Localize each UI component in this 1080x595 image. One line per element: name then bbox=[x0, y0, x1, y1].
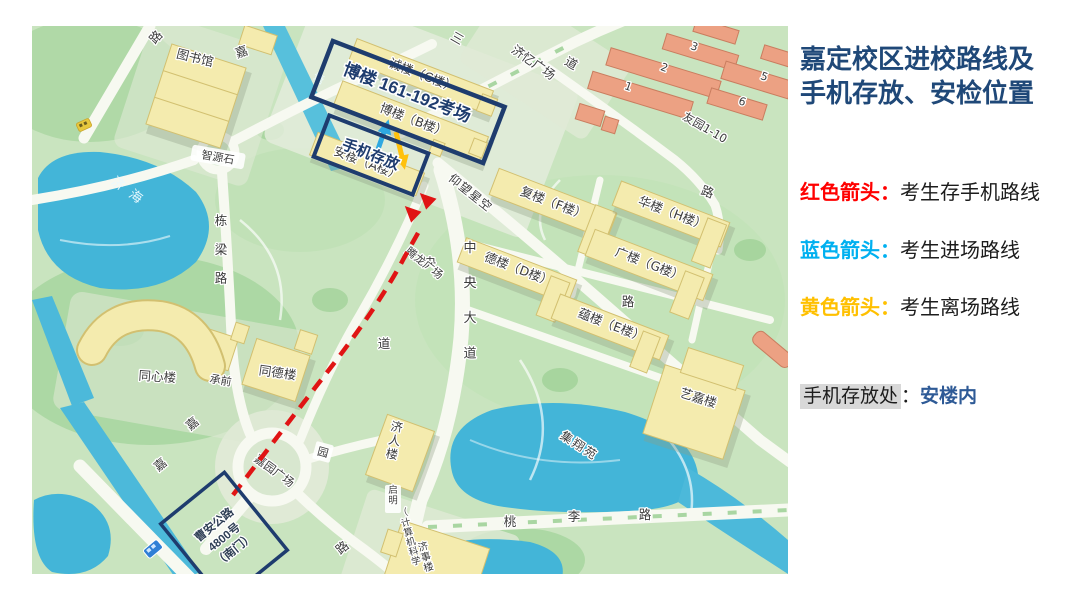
legend-blue-label: 蓝色箭头： bbox=[800, 240, 900, 262]
roadchar-dao-left: 道 bbox=[378, 336, 391, 351]
legend-blue-arrow: 蓝色箭头：考生进场路线 bbox=[800, 234, 1020, 263]
label-dongliang-road: 栋梁路 bbox=[215, 213, 228, 286]
phone-storage-note-label: 手机存放处 bbox=[800, 384, 901, 409]
campus-map: 图书馆 智源石 济海 塘 栋梁路 中央大道 央 道 道 三 路 嘉 路 路 路 … bbox=[32, 26, 788, 574]
legend-red-label: 红色箭头： bbox=[800, 182, 900, 204]
legend-panel: 嘉定校区进校路线及 手机存放、安检位置 红色箭头：考生存手机路线 蓝色箭头：考生… bbox=[795, 0, 1080, 595]
phone-storage-note-value: 安楼内 bbox=[920, 386, 977, 407]
roadchar-li: 李 bbox=[568, 509, 581, 524]
legend-blue-desc: 考生进场路线 bbox=[900, 240, 1020, 262]
legend-yellow-desc: 考生离场路线 bbox=[900, 297, 1020, 319]
page-title-line1: 嘉定校区进校路线及 bbox=[800, 42, 1034, 76]
page-title: 嘉定校区进校路线及 手机存放、安检位置 bbox=[800, 42, 1034, 111]
label-tongxin: 同心楼 bbox=[138, 368, 176, 386]
page-title-line2: 手机存放、安检位置 bbox=[800, 76, 1034, 110]
roadchar-tao: 桃 bbox=[504, 514, 517, 529]
phone-storage-note-colon: ： bbox=[901, 386, 920, 407]
roadchar-lu-e: 路 bbox=[622, 294, 635, 309]
legend-yellow-arrow: 黄色箭头：考生离场路线 bbox=[800, 291, 1020, 320]
phone-storage-note: 手机存放处：安楼内 bbox=[800, 381, 977, 408]
roadchar-lu-taoli: 路 bbox=[639, 507, 652, 522]
legend-yellow-label: 黄色箭头： bbox=[800, 297, 900, 319]
legend-red-desc: 考生存手机路线 bbox=[900, 182, 1040, 204]
legend-red-arrow: 红色箭头：考生存手机路线 bbox=[800, 176, 1040, 205]
svg-text:启明: 启明 bbox=[388, 484, 398, 506]
